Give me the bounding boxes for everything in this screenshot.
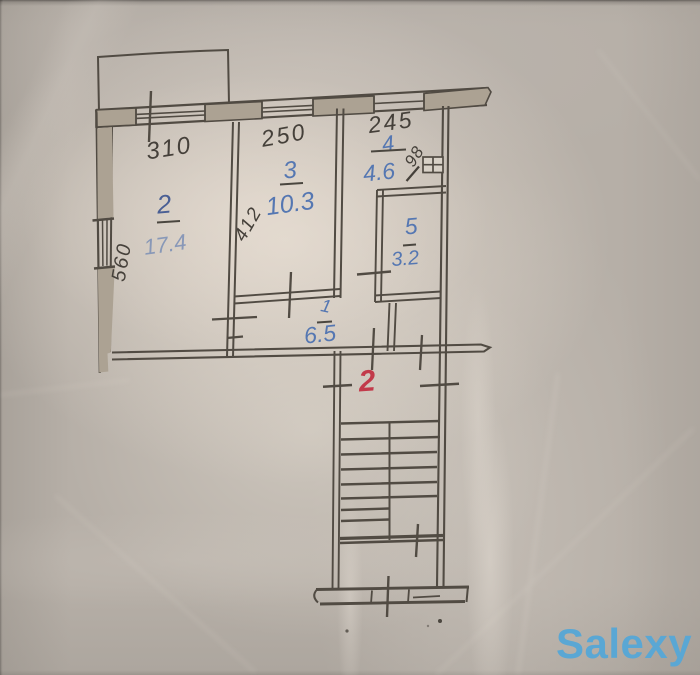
svg-text:412: 412 (230, 203, 266, 245)
svg-text:1: 1 (319, 295, 333, 317)
svg-text:2: 2 (357, 364, 377, 398)
svg-text:17.4: 17.4 (142, 229, 188, 260)
svg-text:3.2: 3.2 (390, 247, 420, 271)
svg-text:6.5: 6.5 (303, 319, 338, 348)
svg-text:250: 250 (258, 118, 309, 152)
svg-text:5: 5 (403, 212, 418, 239)
svg-text:4.6: 4.6 (362, 157, 397, 186)
svg-text:560: 560 (108, 241, 137, 284)
svg-text:3: 3 (282, 156, 299, 184)
svg-text:10.3: 10.3 (264, 187, 316, 222)
svg-text:2: 2 (154, 188, 173, 219)
svg-text:310: 310 (144, 132, 194, 166)
